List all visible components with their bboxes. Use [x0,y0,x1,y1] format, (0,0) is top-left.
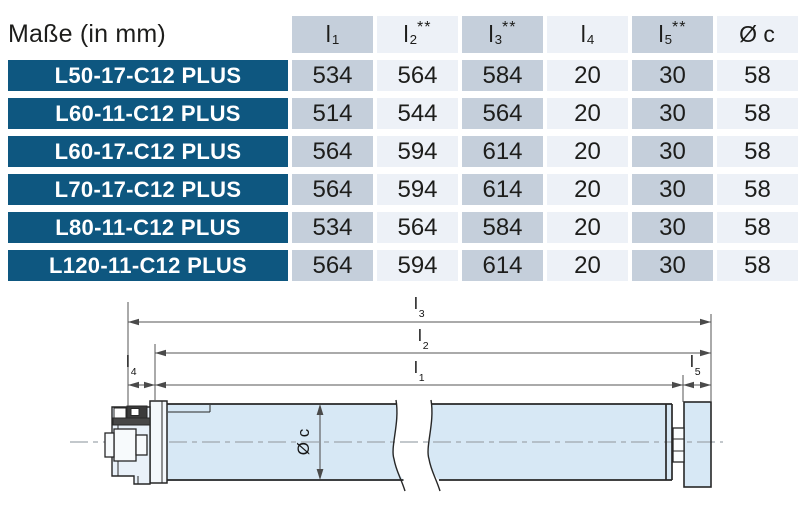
table-cell: 30 [632,174,713,205]
model-cell: L50-17-C12 PLUS [8,60,288,91]
table-cell: 594 [377,174,458,205]
table-cell: 564 [292,174,373,205]
table-cell: 20 [547,136,628,167]
table-cell: 584 [462,212,543,243]
drive-head [105,406,150,484]
table-cell: 20 [547,250,628,281]
table-cell: 534 [292,212,373,243]
table-cell: 58 [717,136,798,167]
table-cell: 58 [717,212,798,243]
model-cell: L60-11-C12 PLUS [8,98,288,129]
table-cell: 564 [292,136,373,167]
motor-dimension-diagram: l3 l2 l1 l4 l5 Ø c [0,290,800,518]
end-connector [673,428,684,462]
dim-label-l2: l2 [418,326,429,352]
table-cell: 544 [377,98,458,129]
table-cell: 58 [717,174,798,205]
column-header-diameter: Ø c [717,16,798,53]
model-cell: L60-17-C12 PLUS [8,136,288,167]
table-cell: 514 [292,98,373,129]
table-cell: 614 [462,250,543,281]
table-cell: 594 [377,136,458,167]
dimensions-table: Maße (in mm) l1 l2** l3** l4 l5** Ø c L5… [8,16,798,281]
table-caption: Maße (in mm) [8,16,288,53]
column-header-l1: l1 [292,16,373,53]
column-header-l2: l2** [377,16,458,53]
dim-label-l3: l3 [414,294,425,320]
table-cell: 534 [292,60,373,91]
table-cell: 584 [462,60,543,91]
model-cell: L70-17-C12 PLUS [8,174,288,205]
table-cell: 564 [462,98,543,129]
model-cell: L120-11-C12 PLUS [8,250,288,281]
table-cell: 564 [377,60,458,91]
tube-body [167,402,711,487]
table-cell: 30 [632,136,713,167]
table-cell: 20 [547,174,628,205]
dim-label-l4: l4 [126,352,137,378]
model-cell: L80-11-C12 PLUS [8,212,288,243]
table-cell: 20 [547,212,628,243]
column-header-l5: l5** [632,16,713,53]
column-header-l3: l3** [462,16,543,53]
column-header-l4: l4 [547,16,628,53]
table-cell: 30 [632,250,713,281]
table-cell: 30 [632,60,713,91]
dim-label-l1: l1 [414,358,425,384]
table-cell: 614 [462,136,543,167]
table-cell: 58 [717,60,798,91]
table-cell: 614 [462,174,543,205]
table-cell: 564 [377,212,458,243]
table-cell: 594 [377,250,458,281]
dim-label-l5: l5 [690,352,701,378]
table-cell: 58 [717,98,798,129]
motor-drawing [0,290,800,518]
dim-label-diameter: Ø c [293,421,315,463]
table-cell: 20 [547,98,628,129]
table-cell: 30 [632,98,713,129]
table-cell: 30 [632,212,713,243]
table-cell: 564 [292,250,373,281]
table-cell: 58 [717,250,798,281]
datasheet-page: Maße (in mm) l1 l2** l3** l4 l5** Ø c L5… [0,0,800,518]
table-cell: 20 [547,60,628,91]
